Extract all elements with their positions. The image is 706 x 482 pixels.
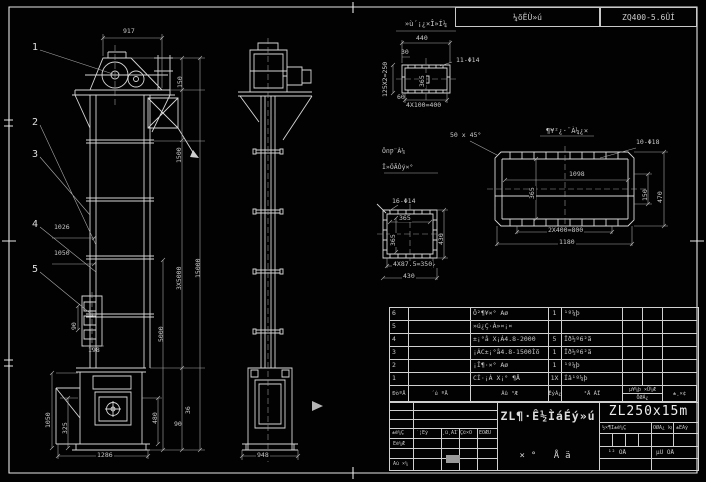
detail-right-dim-150: 150 [642, 189, 649, 201]
dim-150: 150 [177, 76, 184, 88]
bom-no: 5 [390, 321, 409, 334]
header-cell-left: ¼õËÙ»ú [455, 7, 600, 27]
sign-col-date: ÈÕÆÚ [479, 430, 496, 436]
bom-name: »ú¿Ç·À»¤¡¤ [471, 321, 549, 334]
bom-name: CÍ·¡Á X¡° ¶Å [471, 373, 549, 386]
dim-480: 480 [152, 412, 159, 424]
bom-mat: ¹º¼þ [562, 308, 623, 321]
bom-qty: 5 [549, 334, 562, 347]
scale-label: ±ÈÀý [676, 425, 696, 431]
cad-drawing-canvas[interactable]: ¼õËÙ»ú ZQ400-5.6ÛÍ 917 1 2 3 4 5 150 150… [0, 0, 706, 482]
bom-code [409, 334, 471, 347]
bom-header-note: ±¸×¢ [663, 386, 697, 402]
balloon-1: 1 [32, 42, 38, 53]
balloon-5: 5 [32, 264, 38, 275]
dim-15000: 15000 [195, 258, 202, 278]
detail-top-dim-440: 440 [416, 35, 428, 42]
bom-name: ¡ÁC±¡°å4.8-1500Ìõ [471, 347, 549, 360]
bom-no: 4 [390, 334, 409, 347]
bom-no: 1 [390, 373, 409, 386]
bom-no: 2 [390, 360, 409, 373]
drawing-title: ZL¶·Ê½ÌáÉý»ú [498, 409, 598, 423]
design-label: Éè¼Æ [393, 441, 405, 447]
stage-mark-label: ½×¶Î±ê¼Ç [602, 425, 650, 431]
pulley-circles [102, 62, 144, 416]
sheet-number-label: µÚ ÕÅ [656, 449, 674, 456]
dim-325: 325 [62, 422, 69, 434]
dim-90: 90 [174, 421, 182, 428]
detail-left-dim-430r: 430 [438, 233, 445, 245]
dim-1050-boot: 1050 [45, 412, 52, 428]
detail-top-dim-left: 125X2=250 [382, 62, 389, 97]
bom-header-weight-top: µ¥¼þ ×Ü¼Æ [623, 386, 662, 394]
detail-left-dim-365v: 365 [390, 233, 397, 247]
detail-left-dim-bottom1: 4X87.5=350 [392, 261, 433, 268]
detail-top-dim-bottom: 4X100=400 [406, 102, 441, 109]
detail-right-dim-365: 365 [529, 186, 536, 200]
chamfer-label: 50 x 45° [450, 132, 481, 139]
bom-header-qty: ÊýÁ¿ [549, 386, 562, 402]
dim-917: 917 [123, 28, 135, 35]
detail-left-dim-365h: 365 [398, 215, 412, 222]
detail-left-title-1: ÖпǷ¨À¼ [382, 148, 405, 155]
sheet-total-label: ¹² ÕÅ [608, 449, 626, 456]
model-number: ZL250x15m [599, 401, 698, 422]
bom-qty: 1X [549, 373, 562, 386]
bom-header-weight-bottom: ÖØÁ¿ [623, 394, 662, 401]
bom-mat: Íâ¹º¼þ [562, 373, 623, 386]
bom-mat: ¹º¼þ [562, 360, 623, 373]
header-left-text: ¼õËÙ»ú [513, 13, 542, 22]
detail-right-title: ¶¥²¿·¨À¼¿× [538, 127, 596, 135]
dim-3x5000: 3X5000 [176, 267, 183, 290]
dim-1180: 1180 [558, 239, 576, 246]
bom-header-name: Ãû ³Æ [471, 386, 549, 402]
bom-header-weight: µ¥¼þ ×Ü¼Æ ÖØÁ¿ [623, 386, 663, 402]
bom-code [409, 308, 471, 321]
dim-90-vert: 90 [71, 322, 78, 330]
detail-right-dim-470: 470 [657, 191, 664, 203]
sign-col-signature: Ç©×Ö [460, 430, 476, 436]
title-block: ±ê¼Ç ´¦Êý ¸ü¸ÄÎļþºÅ Ç©×Ö ÈÕÆÚ Éè¼Æ Åú ×¼… [389, 401, 699, 471]
detail-top-dim-inner: 365 [419, 74, 426, 88]
detail-left-title-2: Î»ÖÃÒý×° [382, 164, 413, 171]
detail-right-holes-label: 10-Φ18 [636, 139, 659, 146]
bom-qty [549, 321, 562, 334]
bom-code [409, 373, 471, 386]
bom-name: ±¡°å X¡Á4.8-2000 [471, 334, 549, 347]
detail-left-holes-label: 16-Φ14 [392, 198, 415, 205]
detail-top-holes-label: 11-Φ14 [456, 57, 479, 64]
detail-top-dim-30: 30 [401, 49, 409, 56]
bom-mat [562, 321, 623, 334]
dim-1286: 1286 [96, 452, 114, 459]
bom-code [409, 360, 471, 373]
dim-1098: 1098 [568, 171, 586, 178]
bom-name: Ô²¶¥×° Aø [471, 308, 549, 321]
bom-mat: Ïð½º6²ã [562, 347, 623, 360]
bom-no: 6 [390, 308, 409, 321]
dim-1050: 1050 [54, 250, 70, 257]
bom-header-code: ´ú ºÅ [409, 386, 471, 402]
balloon-4: 4 [32, 219, 38, 230]
bom-header-mat: ²Ä ÁÏ [562, 386, 623, 402]
section-mark [312, 401, 323, 411]
detail-left-dim-bottom2: 430 [402, 273, 416, 280]
bom-mat: Ïð½º6²ã [562, 334, 623, 347]
bom-no: 3 [390, 347, 409, 360]
dim-36: 36 [185, 406, 192, 414]
bom-qty: 1 [549, 360, 562, 373]
balloon-2: 2 [32, 117, 38, 128]
assembly-label: ×° Åä [498, 451, 598, 461]
dim-198: 198 [88, 347, 100, 354]
bom-code [409, 321, 471, 334]
bom-header-no: ÐòºÅ [390, 386, 409, 402]
detail-top-dim-60: 60 [397, 94, 405, 101]
bom-code [409, 347, 471, 360]
balloon-3: 3 [32, 149, 38, 160]
dim-1500: 1500 [176, 147, 183, 163]
header-right-text: ZQ400-5.6ÛÍ [622, 13, 675, 22]
weight-label: ÖØÁ¿ kg [653, 425, 672, 431]
highlight-cell [446, 455, 460, 463]
detail-top-title: »ù´¡¿×Î»Í¼ [396, 20, 456, 28]
dim-948: 948 [256, 452, 270, 459]
bom-qty: 1 [549, 347, 562, 360]
dim-2x400: 2X400=800 [547, 227, 584, 234]
dim-5000: 5000 [158, 326, 165, 342]
sign-col-file: ¸ü¸ÄÎļþºÅ [442, 430, 458, 436]
sign-col-count: ´¦Êý [416, 430, 440, 436]
bom-qty: 1 [549, 308, 562, 321]
bom-table: 6 Ô²¶¥×° Aø 1 ¹º¼þ 5 »ú¿Ç·À»¤¡¤ 4 ±¡°å X… [389, 307, 699, 403]
bom-name: ¡Î¶·×° Aø [471, 360, 549, 373]
dim-1026: 1026 [54, 224, 70, 231]
header-cell-right: ZQ400-5.6ÛÍ [600, 7, 697, 27]
flow-arrow [190, 150, 199, 158]
sign-col-mark: ±ê¼Ç [392, 430, 412, 436]
approve-label: Åú ×¼ [393, 461, 408, 467]
